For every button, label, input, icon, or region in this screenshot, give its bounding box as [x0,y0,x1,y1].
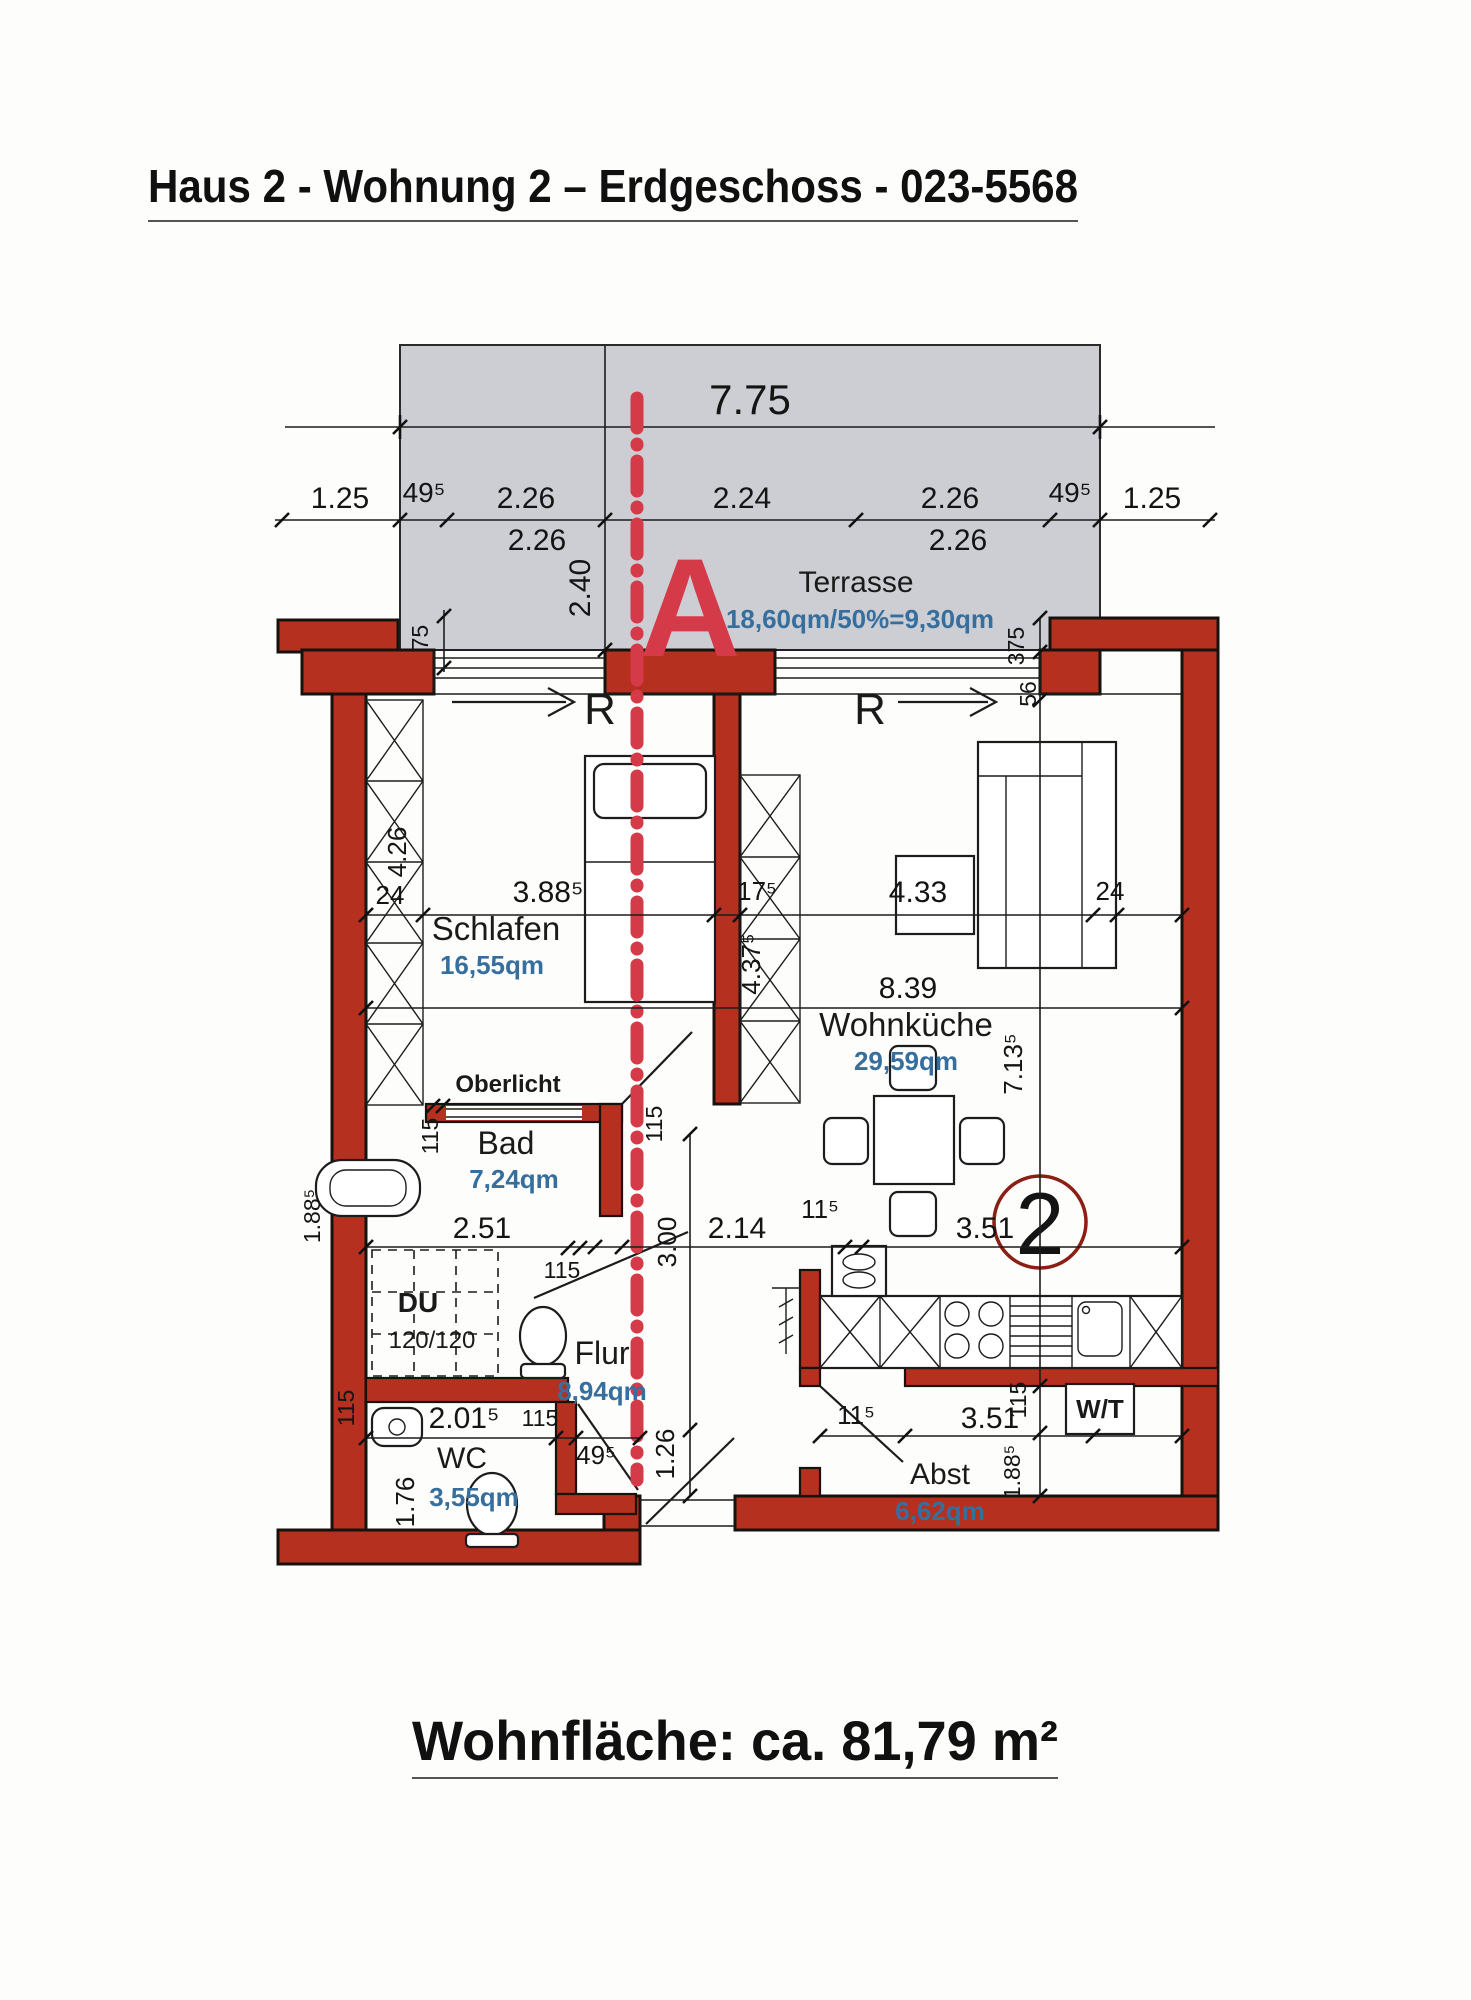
window-terrace-left [434,652,605,692]
wall-kitchen-band-a [800,1368,820,1386]
dim-total-width: 7.75 [709,376,791,423]
bad-washbasin [316,1160,420,1216]
floorplan-page: Haus 2 - Wohnung 2 – Erdgeschoss - 023-5… [0,0,1471,2000]
wall-topleft-step-b [302,650,434,694]
schlafen-area: 16,55qm [440,950,544,980]
abst-label: Abst [910,1458,971,1491]
window-terrace-right [775,658,1040,678]
dim-right-margin: 1.25 [1123,482,1181,515]
oberlicht-label: Oberlicht [455,1071,560,1098]
schlafen-label: Schlafen [432,910,560,947]
dim-wt-side: 115 [1005,1382,1031,1419]
dim-kitchen-width: 3.51 [956,1212,1014,1245]
wall-kitchen-left [800,1270,820,1368]
dim-flur-side: 115 [641,1106,667,1143]
wc-washbasin [372,1408,422,1446]
dining-table [874,1096,954,1184]
living-area-total: Wohnfläche: ca. 81,79 m² [412,1709,1058,1772]
terrace-label: Terrasse [798,566,913,599]
chair-right [960,1118,1004,1164]
dim-flur-width: 2.14 [708,1212,766,1245]
wall-top-right-chunk [1040,650,1100,694]
dim-bad-side: 115 [417,1118,443,1155]
wt-label: W/T [1076,1394,1124,1424]
flur-label: Flur [574,1335,629,1371]
dim-terrace-depth: 2.40 [564,559,597,617]
wall-bottom-left [278,1530,640,1564]
dim-wardrobe-length: 4.26 [382,827,412,878]
bad-area: 7,24qm [469,1164,559,1194]
dim-wc-gap: 49⁵ [576,1440,616,1470]
du-size: 120/120 [389,1327,476,1354]
r-marker-left: R [584,685,616,734]
dim-seg1-bottom: 2.26 [508,524,566,557]
dim-flur-entry: 1.26 [650,1429,680,1480]
dim-bad-door: 115 [544,1257,581,1283]
wall-wc-step [556,1494,636,1514]
wall-schlafen-divider [714,694,740,1104]
dim-seg2: 2.24 [713,482,771,515]
section-letter: A [639,529,740,686]
dim-schlafen-width: 3.88⁵ [513,876,584,909]
wc-label: WC [437,1442,487,1475]
dim-wall24-left: 24 [376,880,405,910]
dim-wall56: 56 [1015,681,1041,707]
wall-kitchen-band-b [905,1368,1218,1386]
dim-seg3-bottom: 2.26 [929,524,987,557]
dim-abst-door: 11⁵ [837,1400,875,1430]
wall-du-wc [366,1378,568,1402]
wall-topleft-step-a [278,620,398,652]
dim-shaft-length: 4.37⁵ [736,933,766,994]
dim-basin-length: 1.88⁵ [299,1189,325,1243]
entry-threshold [640,1500,735,1526]
dim-right-wall: 49⁵ [1049,477,1092,508]
dim-abst-length: 1.88⁵ [999,1445,1025,1499]
terrace-area: 18,60qm/50%=9,30qm [726,604,994,634]
window-oberlicht-opening [446,1106,582,1120]
dim-left-wall: 49⁵ [403,477,446,508]
dim-wc-width: 2.01⁵ [429,1402,500,1435]
page-title: Haus 2 - Wohnung 2 – Erdgeschoss - 023-5… [148,160,1078,212]
wall-bad-right [600,1104,622,1216]
floorplan-drawing: Haus 2 - Wohnung 2 – Erdgeschoss - 023-5… [0,0,1471,2000]
dim-wall375-right: 375 [1003,627,1029,665]
title-block: Haus 2 - Wohnung 2 – Erdgeschoss - 023-5… [148,160,1078,221]
flur-area: 8,94qm [557,1376,647,1406]
dim-inner-width: 8.39 [879,972,937,1005]
wohnkueche-label: Wohnküche [819,1006,993,1043]
wohnkueche-area: 29,59qm [854,1046,958,1076]
abst-area: 6,62qm [895,1496,985,1526]
wall-wc-right [556,1402,576,1494]
dim-seg1-top: 2.26 [497,482,555,515]
dim-seg3-top: 2.26 [921,482,979,515]
dim-wc-length: 1.76 [390,1477,420,1528]
dim-wall24-right: 24 [1096,876,1125,906]
dim-flur-door: 11⁵ [801,1194,839,1224]
dim-kueche-width: 4.33 [889,876,947,909]
footer-block: Wohnfläche: ca. 81,79 m² [412,1709,1058,1778]
wall-abst-left [800,1468,820,1496]
wc-area: 3,55qm [429,1482,519,1512]
chair-left [824,1118,868,1164]
du-label: DU [398,1287,438,1318]
chair-bottom [890,1192,936,1236]
dim-flur-length: 3.00 [652,1217,682,1268]
wall-left [332,694,366,1564]
dim-wc-door: 115 [522,1405,559,1431]
r-marker-right: R [854,685,886,734]
bed-pillow [594,764,706,818]
toilet-bad-bowl [520,1307,566,1365]
vent-symbol [772,1288,800,1354]
dim-left-margin: 1.25 [311,482,369,515]
dim-shaft-width: 17⁵ [737,876,777,906]
dim-bad-width: 2.51 [453,1212,511,1245]
dim-kueche-length: 7.13⁵ [998,1033,1028,1094]
dim-wc-side: 115 [333,1390,359,1427]
toilet-wc-tank [466,1534,518,1547]
wall-topright-step [1050,618,1218,650]
bad-label: Bad [478,1125,535,1161]
